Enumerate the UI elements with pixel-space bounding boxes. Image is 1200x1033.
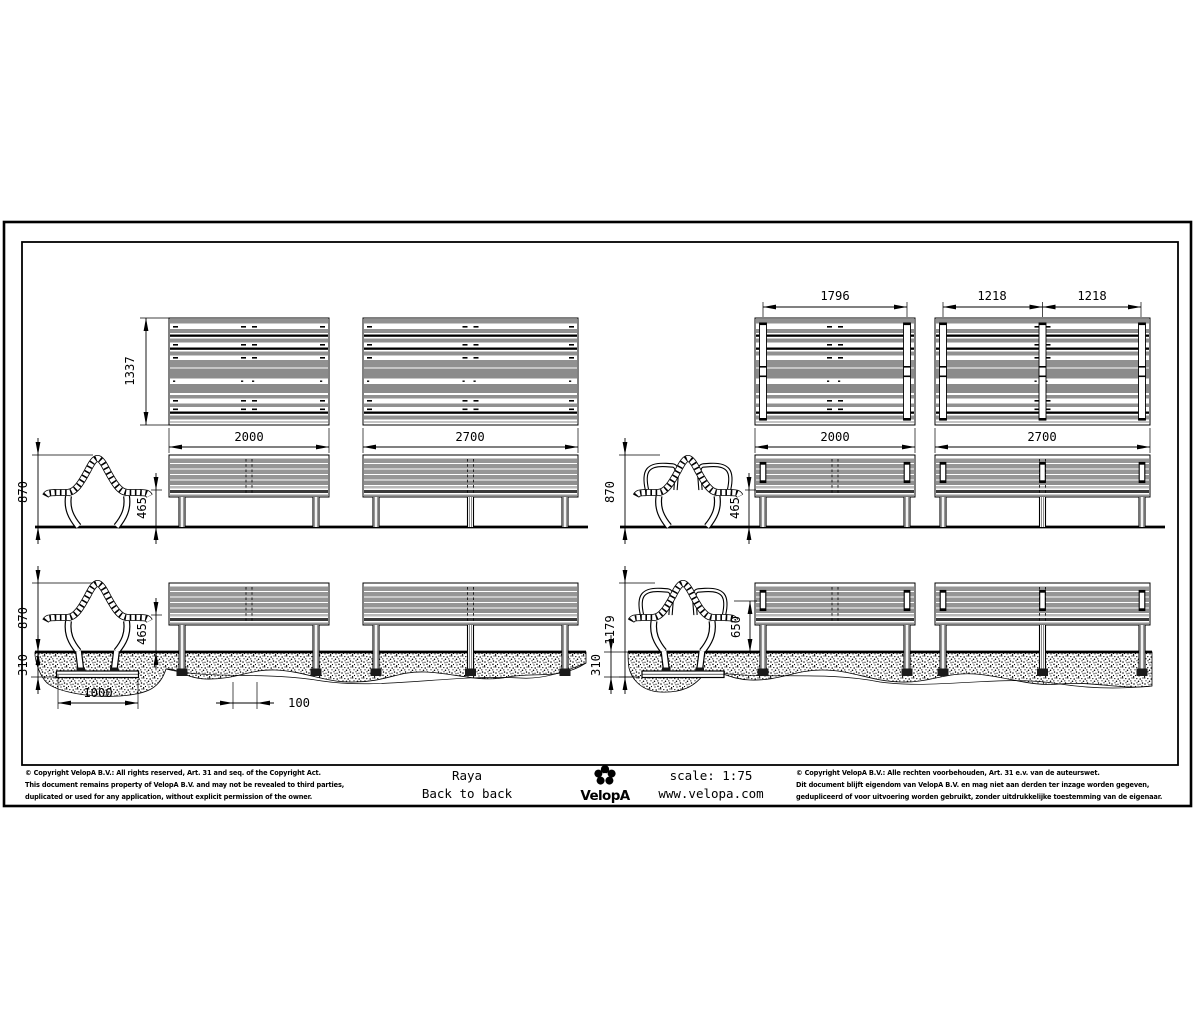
dim-length-long-right: 2700	[935, 428, 1150, 453]
plan-view-2700-plain	[363, 318, 578, 425]
copyright-block-en: © Copyright VelopA B.V.: All rights rese…	[25, 768, 344, 804]
dim-armrest-pitch-short: 1796	[763, 289, 907, 317]
dim-armrest-pitch-long-a: 1218	[943, 289, 1043, 317]
svg-text:2700: 2700	[1027, 430, 1056, 444]
scale-block: scale: 1:75 www.velopa.com	[631, 767, 791, 802]
technical-drawing: 1337200027008704658703104651000100179612…	[0, 0, 1200, 1033]
copyright-block-nl: © Copyright VelopA B.V.: Alle rechten vo…	[796, 768, 1162, 804]
drawing-title: Raya Back to back	[387, 767, 547, 802]
copyright-line: duplicated or used for any application, …	[25, 792, 344, 804]
drawing-sheet: 1337200027008704658703104651000100179612…	[0, 0, 1200, 1033]
svg-text:650: 650	[729, 616, 743, 638]
elevation-2700-armrests	[935, 455, 1150, 527]
dim-armrest-height: 650	[729, 601, 757, 652]
svg-text:1218: 1218	[977, 289, 1006, 303]
copyright-line: This document remains property of VelopA…	[25, 780, 344, 792]
side-profile-armrests	[636, 459, 740, 527]
plan-view-2700-armrests	[935, 318, 1150, 425]
copyright-line: Dit document blijft eigendom van VelopA …	[796, 780, 1162, 792]
svg-text:1796: 1796	[820, 289, 849, 303]
side-profile-plain	[46, 459, 150, 527]
variant-name: Back to back	[387, 785, 547, 803]
plan-view-2000-armrests	[755, 318, 915, 425]
svg-text:870: 870	[603, 481, 617, 503]
dim-length-long-left: 2700	[363, 428, 578, 453]
dim-length-short-right: 2000	[755, 428, 915, 453]
website-link: www.velopa.com	[631, 785, 791, 803]
velopa-logo-icon	[591, 764, 619, 788]
elevation-2700-plain	[363, 455, 578, 527]
copyright-line: © Copyright VelopA B.V.: Alle rechten vo…	[796, 768, 1162, 780]
svg-text:1218: 1218	[1077, 289, 1106, 303]
svg-text:2000: 2000	[234, 430, 263, 444]
svg-text:2000: 2000	[820, 430, 849, 444]
scale-label: scale: 1:75	[631, 767, 791, 785]
copyright-line: © Copyright VelopA B.V.: All rights rese…	[25, 768, 344, 780]
dim-length-short-left: 2000	[169, 428, 329, 453]
svg-text:465: 465	[728, 497, 742, 519]
elevation-2000-armrests	[755, 455, 915, 527]
dim-plan-depth: 1337	[123, 318, 169, 425]
dim-armrest-pitch-long-b: 1218	[1043, 289, 1142, 317]
plan-view-2000-plain	[169, 318, 329, 425]
elevation-2000-plain	[169, 455, 329, 527]
brand-logo: VelopA	[580, 764, 630, 803]
svg-text:870: 870	[16, 481, 30, 503]
svg-text:2700: 2700	[455, 430, 484, 444]
product-name: Raya	[387, 767, 547, 785]
brand-name: VelopA	[580, 790, 630, 803]
svg-text:1000: 1000	[83, 686, 112, 700]
dim-seat-height-left: 465	[135, 473, 162, 544]
svg-text:310: 310	[16, 654, 30, 676]
svg-text:310: 310	[589, 654, 603, 676]
svg-text:100: 100	[288, 696, 310, 710]
svg-text:870: 870	[16, 607, 30, 629]
svg-text:465: 465	[135, 497, 149, 519]
copyright-line: gedupliceerd of voor uitvoering worden g…	[796, 792, 1162, 804]
dim-center-offset: 100	[216, 682, 310, 710]
svg-text:465: 465	[135, 623, 149, 645]
svg-text:1337: 1337	[123, 356, 137, 385]
